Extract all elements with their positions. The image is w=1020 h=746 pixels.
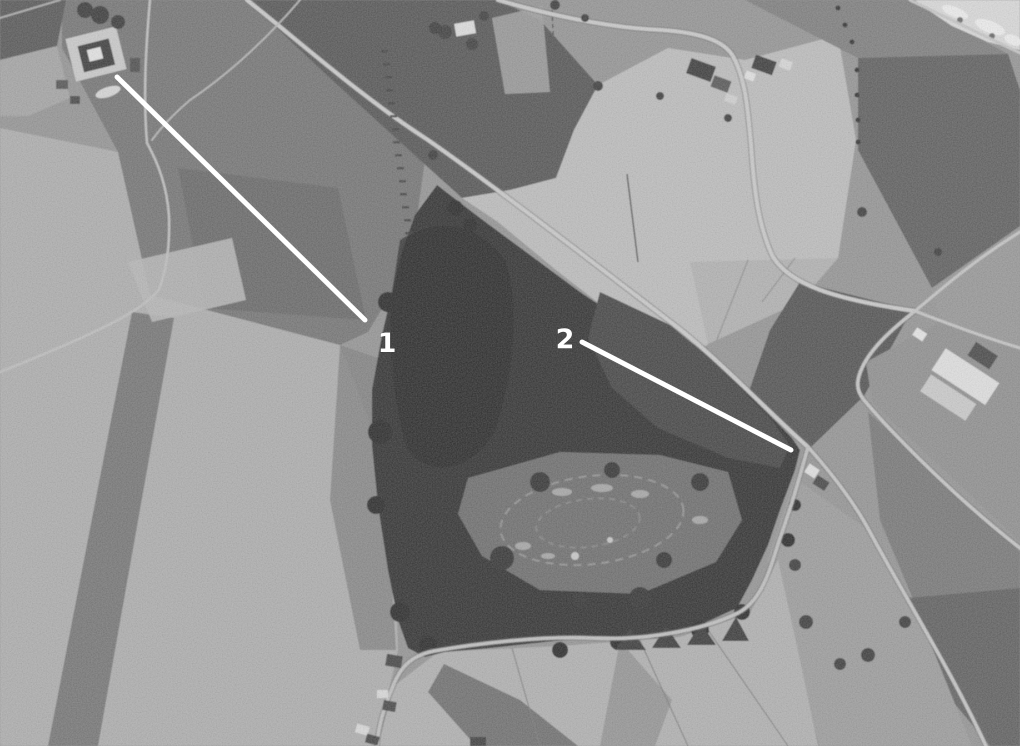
annotation-label-2: 2: [556, 324, 575, 355]
aerial-photo: 1 2: [0, 0, 1020, 746]
annotation-label-1: 1: [378, 328, 397, 359]
aerial-photo-canvas: 1 2: [0, 0, 1020, 746]
